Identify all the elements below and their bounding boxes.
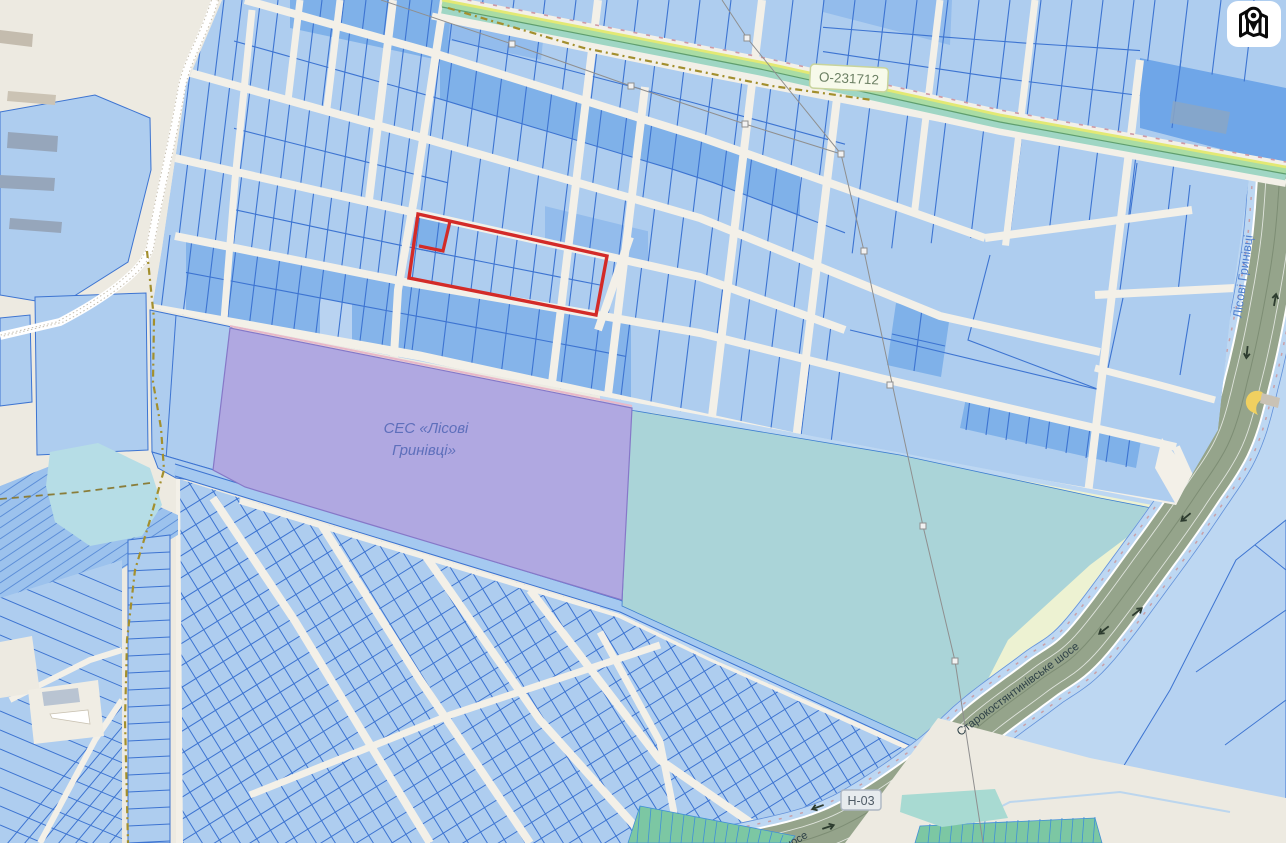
svg-text:Н-03: Н-03 bbox=[847, 794, 874, 808]
svg-text:СЕС «Лісові: СЕС «Лісові bbox=[384, 420, 469, 437]
svg-text:Гринівці»: Гринівці» bbox=[392, 442, 456, 459]
svg-text:О-231712: О-231712 bbox=[819, 69, 880, 87]
